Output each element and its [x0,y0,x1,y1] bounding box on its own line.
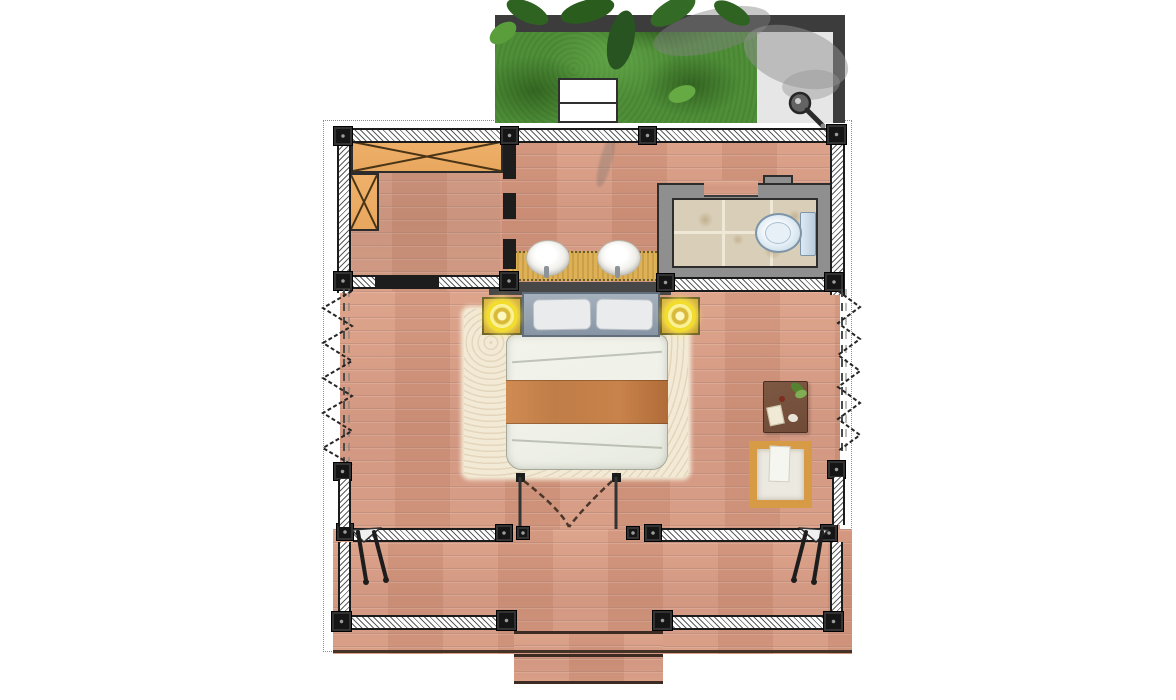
step-edge-1 [514,631,663,634]
deck-rail-bottom-left [350,615,514,630]
post-door-outer-left [495,524,513,542]
lamp-icon-left [486,300,518,332]
closet-right-wall-seg2 [503,193,516,219]
brace-icon-left [346,522,392,590]
step-edge-3 [514,681,663,684]
faucet-left [544,266,549,278]
left-wall-lower [338,479,351,527]
nightstand-right [660,297,700,335]
top-exterior-wall [337,128,845,143]
shower-head-icon [775,82,831,132]
closet-right-wall-seg1 [503,143,516,179]
post-steps-right [652,610,673,631]
brace-icon-right [788,522,834,590]
bed-blanket-band [506,380,668,424]
door-swing-icon [512,473,624,531]
toilet-tank [800,212,816,256]
garden-bench-divider [560,102,616,104]
bedroom-north-wall-right [668,277,824,292]
post-door-inner-right [626,526,640,540]
closet-bottom-wall-solid [375,275,439,289]
right-wall-lower [832,477,845,525]
garden-region [495,15,845,123]
lamp-icon-right [664,300,696,332]
folding-door-zigzag-icon-left [314,289,360,467]
closet-right-wall-seg3 [503,239,516,269]
post-top-4 [826,124,847,145]
post-top-1 [333,126,353,146]
pillow-left [533,298,592,330]
pillow-right [596,299,654,331]
deck-rail-left [338,542,351,616]
garden-bench [558,78,618,123]
faucet-right [615,266,620,278]
post-door-inner-left [516,526,530,540]
desk-dish [787,413,798,423]
toilet-icon [755,213,802,253]
step-edge-2 [514,654,663,657]
floor-steps [514,632,663,684]
folding-door-zigzag-icon-right [834,289,880,455]
post-door-outer-right [644,524,662,542]
post-vanity-left [499,271,519,291]
post-steps-left [496,610,517,631]
lounge-seat [749,441,812,508]
wardrobe-x-icon [351,140,503,173]
desk-red-item [779,396,785,402]
bathroom-wall-notch [763,175,793,185]
floor-plan-canvas [0,0,1176,700]
toilet-bowl-inner [765,222,791,244]
wardrobe-side-x-icon [349,173,379,231]
post-bath-left [656,273,675,292]
nightstand-left [482,297,522,335]
writing-desk [763,381,808,433]
post-top-3 [638,126,657,145]
deck-rail-bottom-right [657,615,829,630]
post-top-2 [500,126,519,145]
deck-front-edge [333,650,852,653]
bathroom-door-opening [704,180,758,197]
post-deck-br [823,611,844,632]
post-left-mid [333,271,353,291]
seat-towel [768,446,790,483]
post-deck-bl [331,611,352,632]
desk-paper [766,405,785,427]
deck-rail-right [830,542,843,616]
